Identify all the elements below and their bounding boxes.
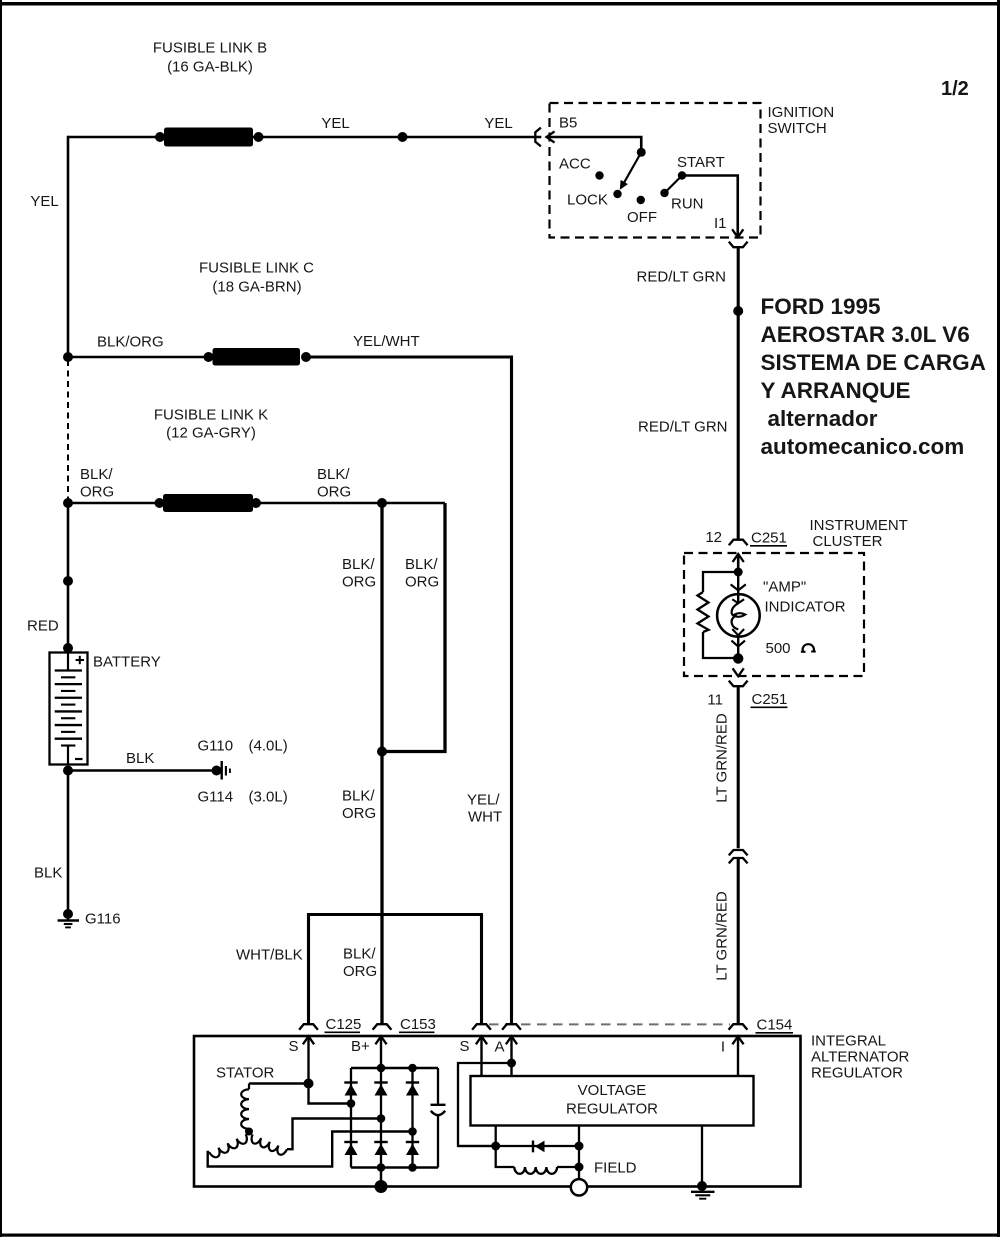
svg-text:BLK/: BLK/ (405, 556, 438, 573)
svg-text:B5: B5 (559, 115, 577, 132)
svg-text:FORD 1995: FORD 1995 (761, 294, 881, 319)
svg-text:A: A (495, 1039, 505, 1056)
svg-text:BLK/: BLK/ (342, 556, 375, 573)
svg-text:"AMP": "AMP" (763, 579, 806, 596)
svg-text:INSTRUMENT: INSTRUMENT (810, 517, 908, 534)
svg-text:LT GRN/RED: LT GRN/RED (714, 891, 731, 981)
svg-text:(4.0L): (4.0L) (249, 738, 288, 755)
svg-text:INTEGRAL: INTEGRAL (811, 1033, 886, 1050)
svg-text:YEL: YEL (484, 115, 512, 132)
svg-text:automecanico.com: automecanico.com (761, 434, 965, 459)
svg-text:RUN: RUN (671, 196, 704, 213)
svg-text:BLK/: BLK/ (343, 946, 376, 963)
svg-text:(18 GA-BRN): (18 GA-BRN) (212, 279, 301, 296)
svg-text:FIELD: FIELD (594, 1160, 637, 1177)
svg-text:500: 500 (766, 640, 791, 657)
svg-text:CLUSTER: CLUSTER (813, 533, 883, 550)
svg-text:G114: G114 (198, 789, 234, 806)
svg-text:ORG: ORG (80, 484, 114, 501)
svg-text:C251: C251 (752, 691, 788, 708)
svg-text:ORG: ORG (342, 574, 376, 591)
svg-text:LT GRN/RED: LT GRN/RED (714, 713, 731, 803)
svg-text:ORG: ORG (343, 963, 377, 980)
svg-text:SWITCH: SWITCH (768, 120, 827, 137)
svg-text:YEL/WHT: YEL/WHT (353, 333, 420, 350)
svg-text:AEROSTAR 3.0L V6: AEROSTAR 3.0L V6 (761, 322, 970, 347)
svg-text:(12 GA-GRY): (12 GA-GRY) (166, 425, 256, 442)
svg-text:11: 11 (707, 692, 723, 709)
svg-text:G110: G110 (198, 738, 234, 755)
svg-text:YEL: YEL (30, 193, 58, 210)
svg-text:ALTERNATOR: ALTERNATOR (811, 1048, 910, 1065)
svg-text:(16 GA-BLK): (16 GA-BLK) (167, 59, 253, 76)
svg-text:ORG: ORG (405, 574, 439, 591)
svg-text:RED/LT GRN: RED/LT GRN (638, 419, 727, 436)
svg-text:BLK/: BLK/ (317, 466, 350, 483)
svg-text:S: S (288, 1038, 298, 1055)
svg-text:WHT: WHT (468, 809, 502, 826)
svg-text:LOCK: LOCK (567, 192, 608, 209)
svg-text:SISTEMA DE CARGA: SISTEMA DE CARGA (761, 350, 986, 375)
svg-text:ACC: ACC (559, 156, 591, 173)
svg-text:G116: G116 (85, 911, 121, 928)
svg-text:C125: C125 (326, 1016, 362, 1033)
svg-text:WHT/BLK: WHT/BLK (236, 947, 303, 964)
svg-text:BLK/: BLK/ (80, 466, 113, 483)
svg-text:START: START (677, 154, 725, 171)
svg-text:RED/LT GRN: RED/LT GRN (637, 269, 726, 286)
svg-text:C154: C154 (757, 1017, 793, 1034)
svg-text:STATOR: STATOR (216, 1065, 275, 1082)
svg-text:C153: C153 (400, 1016, 436, 1033)
svg-text:BATTERY: BATTERY (93, 654, 161, 671)
svg-text:12: 12 (705, 529, 722, 546)
svg-text:I: I (721, 1039, 725, 1056)
svg-text:ORG: ORG (342, 805, 376, 822)
svg-text:I1: I1 (714, 215, 727, 232)
svg-text:S: S (459, 1038, 469, 1055)
svg-text:ORG: ORG (317, 484, 351, 501)
svg-text:FUSIBLE LINK C: FUSIBLE LINK C (199, 260, 314, 277)
svg-text:BLK/ORG: BLK/ORG (97, 334, 164, 351)
svg-text:FUSIBLE LINK B: FUSIBLE LINK B (153, 40, 267, 57)
svg-text:YEL: YEL (321, 115, 349, 132)
svg-text:(3.0L): (3.0L) (249, 789, 288, 806)
svg-text:YEL/: YEL/ (467, 792, 500, 809)
svg-text:Y ARRANQUE: Y ARRANQUE (761, 378, 911, 403)
svg-text:B+: B+ (351, 1038, 370, 1055)
svg-text:OFF: OFF (627, 209, 657, 226)
svg-text:VOLTAGE: VOLTAGE (578, 1082, 647, 1099)
svg-text:INDICATOR: INDICATOR (765, 599, 846, 616)
svg-text:1/2: 1/2 (941, 78, 969, 100)
svg-text:BLK/: BLK/ (342, 788, 375, 805)
svg-text:RED: RED (27, 618, 59, 635)
svg-text:BLK: BLK (34, 865, 62, 882)
svg-text:alternador: alternador (768, 406, 878, 431)
svg-text:C251: C251 (751, 530, 787, 547)
svg-text:REGULATOR: REGULATOR (566, 1101, 658, 1118)
svg-text:BLK: BLK (126, 750, 154, 767)
svg-text:FUSIBLE LINK K: FUSIBLE LINK K (154, 407, 268, 424)
svg-text:REGULATOR: REGULATOR (811, 1065, 903, 1082)
svg-text:IGNITION: IGNITION (768, 104, 835, 121)
